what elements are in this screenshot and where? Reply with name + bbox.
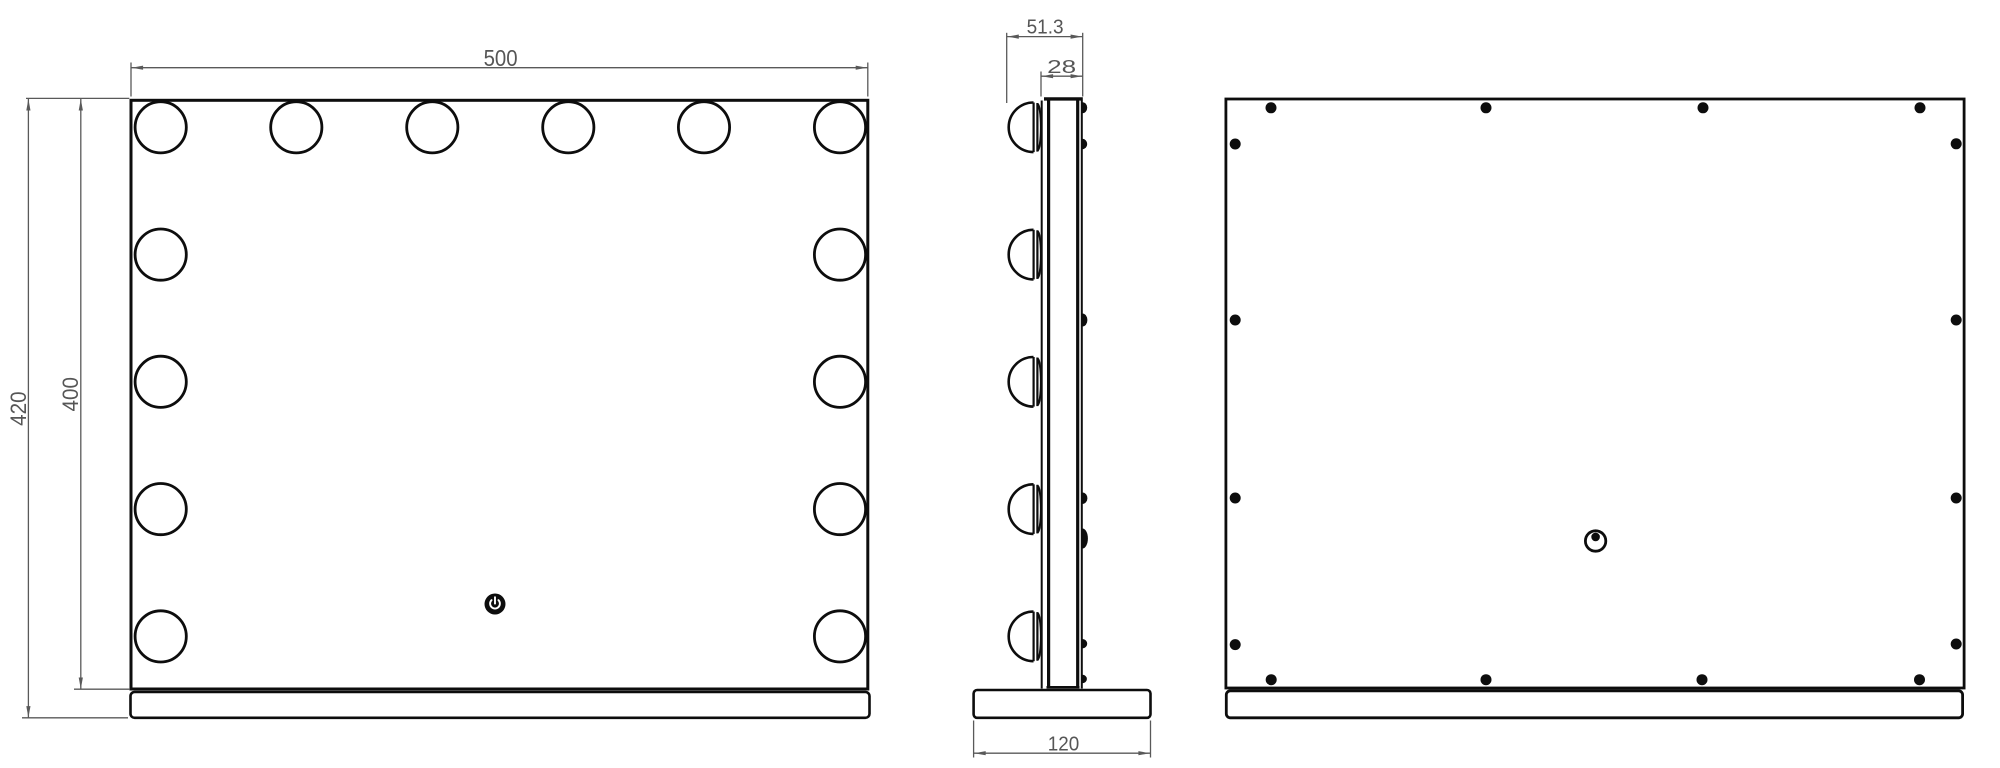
svg-text:420: 420: [6, 391, 31, 426]
svg-text:120: 120: [1048, 733, 1080, 756]
svg-text:400: 400: [58, 377, 83, 412]
svg-text:51.3: 51.3: [1027, 16, 1064, 38]
svg-text:28: 28: [1047, 56, 1076, 77]
svg-text:500: 500: [484, 45, 518, 71]
